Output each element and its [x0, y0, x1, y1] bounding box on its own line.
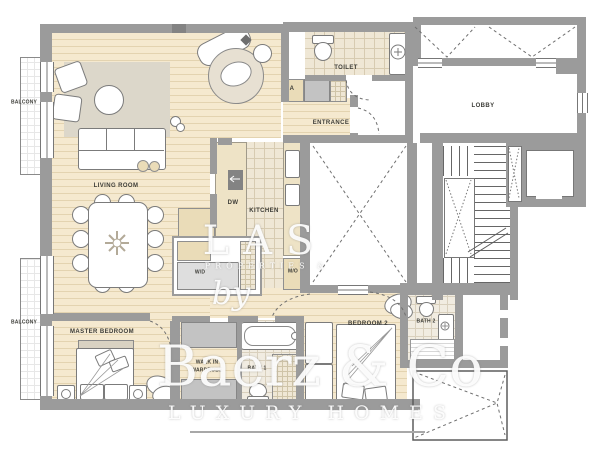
dining-chair-icon [146, 254, 164, 272]
cooktop-icon [285, 184, 300, 206]
wall [218, 138, 232, 145]
wall [40, 92, 52, 102]
door-opening [346, 75, 372, 81]
window [338, 285, 368, 295]
kitchen-label: KITCHEN [249, 208, 278, 214]
living-room-label: LIVING ROOM [94, 183, 139, 189]
elevator-car [526, 150, 574, 197]
window [40, 102, 54, 158]
watermark-brand-top: LAS [203, 218, 328, 264]
wall [40, 314, 52, 326]
wall [500, 293, 508, 360]
wall [350, 95, 358, 107]
dining-chair-icon [146, 230, 164, 248]
watermark-by: by [212, 274, 251, 312]
toilet-cabinet-tiled [330, 80, 347, 102]
window [40, 256, 54, 314]
stair-void [444, 178, 475, 258]
sofa-cushion-line [106, 128, 107, 151]
window [40, 326, 54, 396]
wall [40, 24, 283, 33]
wall-column [172, 24, 186, 33]
wall-pillar [556, 58, 577, 74]
entrance-floor [283, 98, 350, 138]
side-table-icon [253, 44, 272, 63]
dishwasher-icon [228, 170, 243, 190]
duvet-icon [104, 384, 128, 400]
wall [175, 316, 210, 322]
toilet-label: TOILET [334, 65, 358, 71]
wall [210, 138, 217, 174]
closet-a-label: A [290, 86, 295, 92]
armchair-icon [51, 93, 82, 123]
elevator-door [536, 194, 562, 199]
wall [432, 137, 443, 300]
lobby-label: LOBBY [472, 103, 495, 109]
wall [40, 158, 52, 256]
elevator-side-shaft [508, 146, 522, 202]
sofa-cushion-line [78, 150, 164, 151]
kitchen-sink-icon [285, 150, 300, 178]
wall [275, 316, 304, 322]
door-opening [500, 310, 508, 318]
building-entry-door [577, 93, 588, 113]
stair-flight [443, 258, 473, 286]
master-bedroom-label: MASTER BEDROOM [70, 329, 134, 335]
dining-chair-icon [146, 206, 164, 224]
wall [413, 17, 585, 25]
wall [420, 133, 585, 143]
watermark-underline [190, 431, 425, 433]
wall [407, 143, 417, 293]
stair-flight [443, 146, 473, 176]
window [418, 58, 442, 68]
floor-plan: BALCONY BALCONY LIVING ROOM ENTRANCE TOI… [0, 0, 600, 453]
toilet-cabinet-icon [304, 79, 330, 102]
floor-lamp-icon [176, 123, 185, 132]
dishwasher-label: DW [228, 200, 239, 206]
dining-table-icon [88, 202, 148, 288]
door-opening [150, 313, 172, 321]
window [40, 62, 54, 92]
balcony-bottom-label: BALCONY [11, 321, 37, 326]
balcony-top-label: BALCONY [11, 101, 37, 106]
stair-flight [474, 146, 510, 286]
wall [228, 316, 258, 322]
watermark-tagline: LUXURY HOMES [168, 402, 456, 424]
wall [40, 24, 52, 62]
sofa-cushion-line [134, 128, 135, 151]
window [536, 58, 556, 68]
side-table-icon [137, 160, 149, 172]
wall [52, 313, 150, 321]
washer-dryer-label: W/D [195, 271, 205, 276]
lamp-icon [133, 389, 143, 399]
door-opening [500, 338, 508, 346]
entrance-label: ENTRANCE [313, 120, 350, 126]
watermark-brand-name: Baerz & Co [157, 335, 483, 400]
wall [281, 30, 289, 102]
bath2-label: BATH 2 [417, 320, 436, 325]
side-table-icon [149, 161, 160, 172]
lamp-icon [61, 389, 71, 399]
wall [283, 22, 413, 32]
duvet-icon [80, 384, 104, 400]
coffee-table-icon [94, 85, 124, 115]
watermark-brand-sub: PROPERTIES & [205, 262, 330, 271]
bedroom2-label: BEDROOM 2 [348, 321, 388, 327]
wall [405, 28, 413, 135]
